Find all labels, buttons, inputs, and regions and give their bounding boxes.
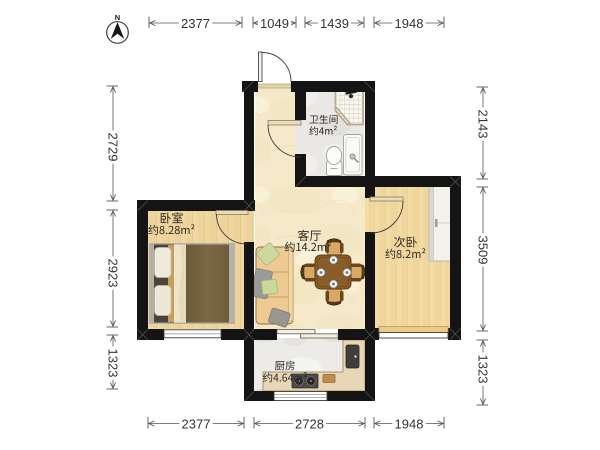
- svg-text:1323: 1323: [106, 349, 121, 378]
- svg-text:1049: 1049: [260, 16, 289, 31]
- svg-text:2143: 2143: [476, 110, 491, 139]
- svg-text:1323: 1323: [476, 355, 491, 384]
- svg-text:2728: 2728: [295, 416, 324, 431]
- svg-text:2377: 2377: [182, 416, 211, 431]
- svg-text:1439: 1439: [320, 16, 349, 31]
- svg-text:2377: 2377: [181, 16, 210, 31]
- svg-text:3509: 3509: [476, 236, 491, 265]
- svg-text:N: N: [115, 13, 120, 22]
- svg-text:1948: 1948: [395, 416, 424, 431]
- svg-text:2923: 2923: [106, 259, 121, 288]
- svg-text:1948: 1948: [395, 16, 424, 31]
- svg-text:2729: 2729: [106, 133, 121, 162]
